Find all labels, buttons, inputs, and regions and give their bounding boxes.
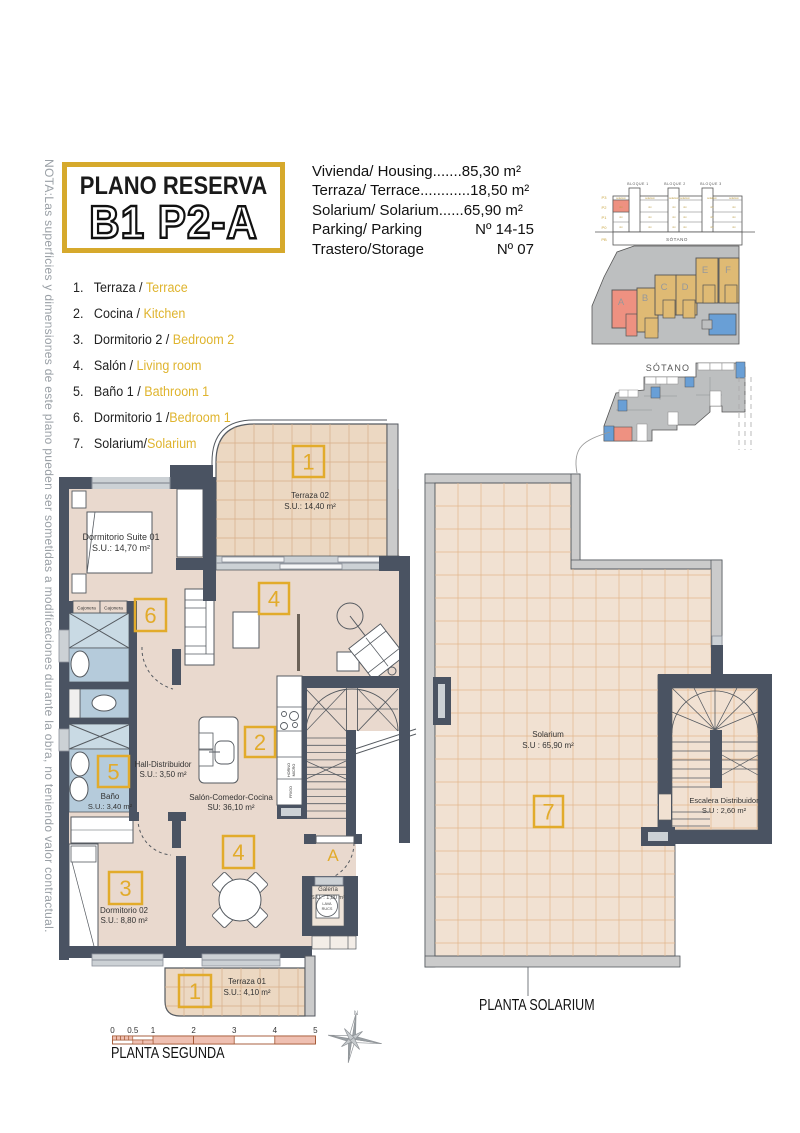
- svg-text:viv: viv: [648, 225, 652, 229]
- svg-text:SU: 36,10 m²: SU: 36,10 m²: [207, 803, 254, 812]
- svg-text:Galería: Galería: [318, 887, 338, 893]
- svg-text:Solarium: Solarium: [532, 730, 564, 739]
- svg-text:S.U : 2,60 m²: S.U : 2,60 m²: [702, 806, 747, 815]
- svg-text:B: B: [642, 293, 648, 304]
- svg-text:viv: viv: [648, 205, 652, 209]
- svg-text:viv: viv: [710, 225, 714, 229]
- svg-text:solarium: solarium: [616, 196, 626, 200]
- svg-text:solarium: solarium: [729, 196, 739, 200]
- svg-text:viv: viv: [710, 215, 714, 219]
- svg-text:0.5: 0.5: [127, 1026, 139, 1035]
- svg-text:S.U : 65,90 m²: S.U : 65,90 m²: [522, 741, 574, 750]
- svg-text:4: 4: [268, 586, 280, 611]
- svg-text:A: A: [618, 297, 625, 308]
- svg-text:0: 0: [110, 1026, 115, 1035]
- svg-text:Cajonera: Cajonera: [77, 606, 96, 611]
- svg-text:viv: viv: [683, 225, 687, 229]
- svg-text:PB: PB: [601, 237, 607, 242]
- svg-text:2: 2: [254, 730, 266, 755]
- svg-text:Dormitorio 02: Dormitorio 02: [100, 906, 149, 915]
- svg-text:viv: viv: [672, 215, 676, 219]
- svg-text:7: 7: [542, 799, 554, 824]
- svg-text:Baño: Baño: [101, 792, 120, 801]
- svg-text:2: 2: [191, 1026, 196, 1035]
- svg-text:viv: viv: [672, 225, 676, 229]
- svg-text:S.U.: 14,70 m²: S.U.: 14,70 m²: [92, 543, 150, 553]
- svg-text:S.U. : 1,80 m²: S.U. : 1,80 m²: [311, 895, 345, 901]
- svg-text:viv: viv: [732, 215, 736, 219]
- svg-text:BLOQUE 1: BLOQUE 1: [627, 182, 649, 186]
- svg-text:4: 4: [273, 1026, 278, 1035]
- svg-text:BLOQUE 3: BLOQUE 3: [700, 182, 722, 186]
- svg-text:solarium: solarium: [645, 196, 655, 200]
- svg-text:solarium: solarium: [680, 196, 690, 200]
- svg-text:Escalera Distribuidor: Escalera Distribuidor: [689, 796, 759, 805]
- svg-text:Cajonera: Cajonera: [104, 606, 123, 611]
- svg-text:Dormitorio Suite 01: Dormitorio Suite 01: [82, 532, 159, 542]
- svg-text:RUCS: RUCS: [322, 907, 333, 911]
- svg-text:BLOQUE 2: BLOQUE 2: [664, 182, 686, 186]
- svg-text:solarium: solarium: [707, 196, 717, 200]
- svg-text:E: E: [702, 265, 708, 276]
- svg-text:solarium: solarium: [669, 196, 679, 200]
- svg-text:3: 3: [119, 876, 131, 901]
- svg-text:4: 4: [232, 840, 244, 865]
- svg-text:P3: P3: [602, 195, 608, 200]
- svg-text:viv: viv: [710, 205, 714, 209]
- svg-text:Hall-Distribuidor: Hall-Distribuidor: [135, 760, 192, 769]
- svg-text:MICRO: MICRO: [292, 764, 296, 777]
- svg-text:P0: P0: [602, 225, 608, 230]
- svg-text:5: 5: [313, 1026, 318, 1035]
- svg-text:SÓTANO: SÓTANO: [666, 236, 688, 242]
- svg-text:Terraza 02: Terraza 02: [291, 491, 329, 500]
- svg-text:1: 1: [189, 979, 201, 1004]
- svg-text:S.U.: 8,80 m²: S.U.: 8,80 m²: [100, 916, 147, 925]
- svg-text:viv: viv: [619, 205, 623, 209]
- svg-text:viv: viv: [619, 225, 623, 229]
- svg-text:viv: viv: [672, 205, 676, 209]
- svg-text:F: F: [725, 265, 731, 276]
- svg-text:viv: viv: [683, 205, 687, 209]
- svg-text:D: D: [682, 282, 689, 293]
- svg-text:S.U.: 4,10 m²: S.U.: 4,10 m²: [223, 988, 270, 997]
- svg-text:viv: viv: [619, 215, 623, 219]
- svg-text:N: N: [354, 1011, 358, 1017]
- svg-text:C: C: [661, 282, 668, 293]
- svg-text:P1: P1: [602, 215, 608, 220]
- svg-text:SÓTANO: SÓTANO: [646, 363, 691, 373]
- svg-text:P2: P2: [602, 205, 608, 210]
- svg-text:Terraza 01: Terraza 01: [228, 977, 266, 986]
- svg-text:LAVA: LAVA: [322, 902, 332, 906]
- svg-text:A: A: [327, 846, 339, 865]
- svg-text:S.U.: 3,50 m²: S.U.: 3,50 m²: [139, 770, 186, 779]
- svg-text:FRIGO: FRIGO: [289, 786, 293, 798]
- svg-text:6: 6: [144, 603, 156, 628]
- svg-text:S.U.: 14,40 m²: S.U.: 14,40 m²: [284, 502, 336, 511]
- svg-text:viv: viv: [732, 205, 736, 209]
- svg-text:1: 1: [302, 449, 314, 474]
- svg-text:1: 1: [151, 1026, 156, 1035]
- svg-text:3: 3: [232, 1026, 237, 1035]
- svg-text:S.U.: 3,40 m²: S.U.: 3,40 m²: [88, 802, 133, 811]
- svg-text:5: 5: [107, 759, 119, 784]
- svg-text:viv: viv: [683, 215, 687, 219]
- svg-text:viv: viv: [648, 215, 652, 219]
- svg-text:Salón-Comedor-Cocina: Salón-Comedor-Cocina: [189, 793, 273, 802]
- svg-text:viv: viv: [732, 225, 736, 229]
- svg-text:HORNO: HORNO: [287, 763, 291, 777]
